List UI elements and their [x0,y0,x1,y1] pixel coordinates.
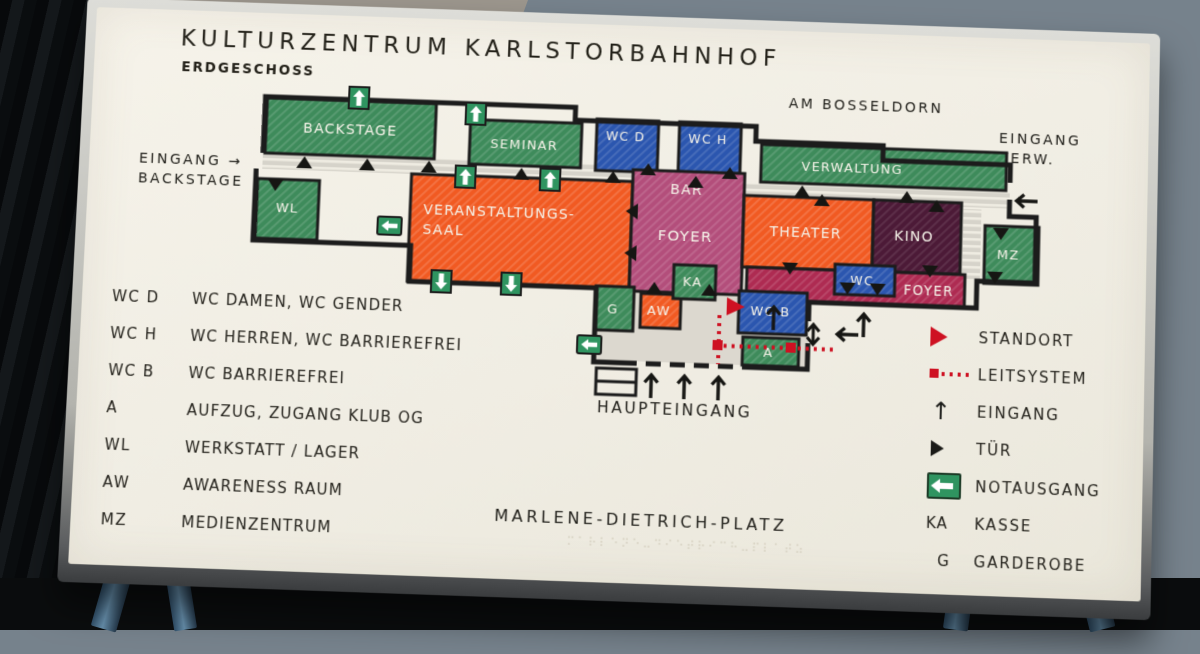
legend-code: AW [102,472,183,493]
legend-desc: MEDIENZENTRUM [181,512,332,536]
legend-code: WC H [110,323,191,344]
outside-steps [595,368,636,396]
legend-desc: WERKSTATT / LAGER [185,438,361,462]
leitsystem-node [786,342,796,352]
legend-code: WL [104,435,185,456]
legend-code: WC D [112,286,193,307]
legend-code: G [925,551,974,571]
room-label: G [608,303,620,318]
street-label-bottom: MARLENE-DIETRICH-PLATZ [494,504,788,538]
room-label: THEATER [770,225,844,244]
room-label: BACKSTAGE [303,121,398,140]
sign-frame: KULTURZENTRUM KARLSTORBAHNHOF ERDGESCHOS… [57,0,1160,620]
entrance-arrow-icon [540,168,561,190]
leitsystem-icon [929,369,977,380]
standort-icon [930,326,979,348]
room-label: WC D [607,128,647,144]
room-label: FOYER [906,284,957,301]
legend-code: WC B [108,360,189,381]
main-entrance-arrow-icon [644,375,658,399]
emergency-exit-icon [577,335,602,354]
entrance-verwaltung-arrow-icon [1016,194,1037,208]
legend-row: G GARDEROBE [925,541,1150,587]
legend-desc: WC DAMEN, WC GENDER [192,289,404,314]
legend-abbreviations: WC DWC DAMEN, WC GENDER WC HWC HERREN, W… [100,277,543,553]
room-label: WC H [690,131,730,147]
elevator-arrow-icon [807,324,820,344]
braille-dots: ⠍⠁⠗⠇⠑⠝⠑⠤⠙⠊⠑⠞⠗⠊⠉⠓⠤⠏⠇⠁⠞⠵ [566,535,806,558]
room-label: SEMINAR [491,137,559,154]
entrance-arrow-icon [455,166,476,188]
entrance-backstage-label: EINGANG → BACKSTAGE [138,149,245,193]
room-label: FOYER [659,227,715,247]
legend-desc: AUFZUG, ZUGANG KLUB OG [186,400,424,426]
leitsystem-node [712,340,722,350]
entrance-arrow-icon [857,314,871,337]
legend-code: MZ [100,510,181,531]
room-label: MZ [1000,249,1023,265]
entrance-arrow-icon [465,103,486,125]
room-label: WL [276,202,299,218]
door-icon [928,439,977,457]
legend-code: KA [926,513,975,533]
main-entrance-arrow-icon [711,377,725,401]
emergency-exit-icon [377,216,402,235]
entrance-arrow-icon [837,328,858,342]
emergency-exit-icon [927,472,976,500]
entrance-arrow-icon [349,87,370,109]
sign-subtitle: ERDGESCHOSS [181,59,315,79]
room-label: SAAL [423,223,465,240]
sign-scene: KULTURZENTRUM KARLSTORBAHNHOF ERDGESCHOS… [0,0,1200,654]
corridor [962,209,982,279]
entrance-arrow-icon: ↑ [928,398,977,424]
room-label: KA [684,276,704,292]
room-wc-damen [595,119,658,173]
sign-panel: KULTURZENTRUM KARLSTORBAHNHOF ERDGESCHOS… [68,7,1150,601]
legend-desc: WC HERREN, WC BARRIEREFREI [190,326,463,354]
room-label: KINO [897,229,937,246]
room-wc-herren [678,122,741,176]
legend-desc: WC BARRIEREFREI [188,363,345,387]
legend-code: A [106,398,187,419]
legend-desc: AWARENESS RAUM [183,475,344,499]
legend-symbols: STANDORT LEITSYSTEM ↑ EINGANG TÜR NOTAUS… [925,317,1150,586]
main-entrance-arrow-icon [677,376,691,400]
room-label: AW [648,305,672,321]
